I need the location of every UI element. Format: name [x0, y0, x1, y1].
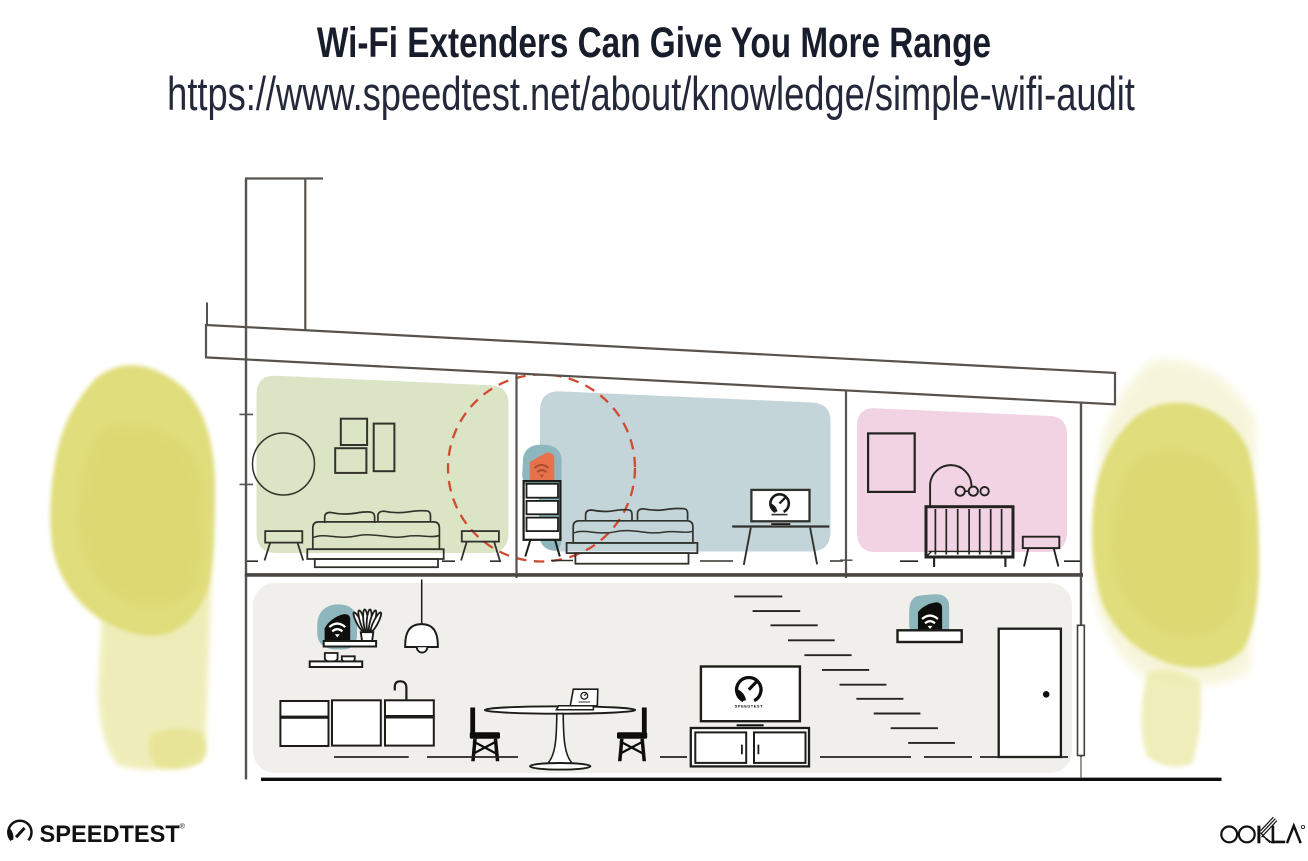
svg-text:https://www.speedtest.net/abou: https://www.speedtest.net/about/knowledg… [167, 67, 1135, 120]
svg-text:SPEEDTEST: SPEEDTEST [735, 704, 763, 709]
svg-text:SPEEDTEST: SPEEDTEST [40, 822, 181, 848]
svg-text:®: ® [180, 823, 186, 831]
svg-text:Wi-Fi Extenders Can Give You M: Wi-Fi Extenders Can Give You More Range [317, 19, 991, 67]
